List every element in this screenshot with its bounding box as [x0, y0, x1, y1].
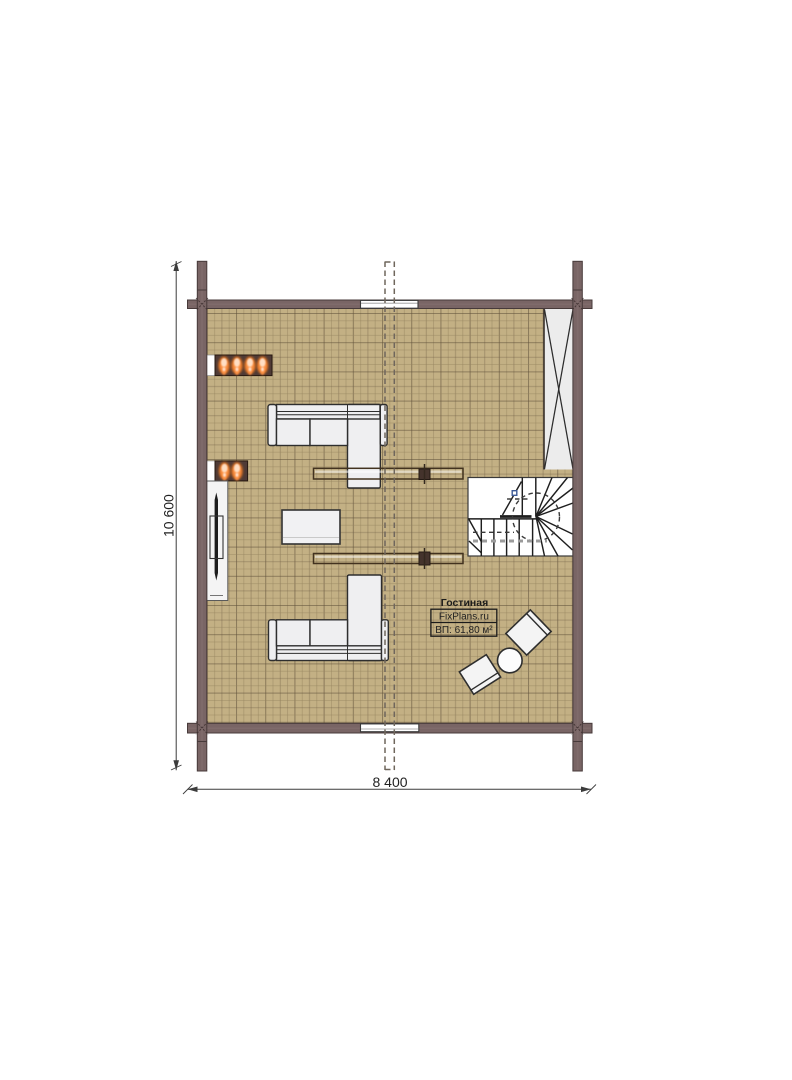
svg-text:10 600: 10 600: [161, 494, 177, 537]
svg-text:ВП: 61,80 м²: ВП: 61,80 м²: [435, 625, 493, 636]
svg-text:Гостиная: Гостиная: [441, 597, 488, 609]
svg-text:FixPlans.ru: FixPlans.ru: [439, 611, 489, 622]
svg-text:8 400: 8 400: [373, 774, 408, 790]
